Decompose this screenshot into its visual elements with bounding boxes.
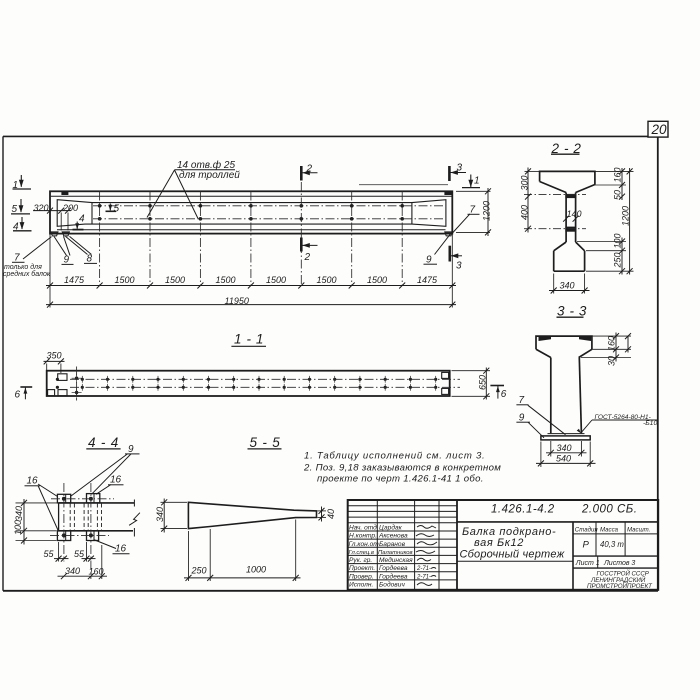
svg-text:Нач. отд: Нач. отд — [349, 524, 377, 532]
svg-text:2: 2 — [306, 164, 313, 175]
svg-text:50: 50 — [613, 190, 623, 200]
svg-text:Провер.: Провер. — [349, 573, 374, 580]
svg-text:только для: только для — [4, 263, 42, 271]
svg-text:540: 540 — [556, 454, 571, 464]
svg-text:4: 4 — [79, 214, 85, 225]
svg-text:6: 6 — [501, 389, 507, 400]
svg-text:1500: 1500 — [115, 275, 135, 285]
svg-text:Цардак: Цардак — [379, 524, 403, 532]
svg-text:Стадия: Стадия — [575, 526, 599, 533]
svg-text:16: 16 — [27, 476, 39, 487]
svg-text:400: 400 — [520, 205, 530, 220]
svg-text:средних балок: средних балок — [3, 270, 51, 278]
svg-text:30: 30 — [607, 356, 617, 366]
svg-text:3: 3 — [457, 163, 463, 174]
svg-text:для троллей: для троллей — [179, 170, 240, 181]
svg-text:350: 350 — [47, 351, 62, 361]
svg-text:250: 250 — [613, 252, 623, 268]
svg-text:16: 16 — [110, 475, 122, 486]
svg-text:1500: 1500 — [266, 275, 286, 285]
svg-text:2.000 СБ.: 2.000 СБ. — [581, 504, 637, 516]
svg-text:Проект.: Проект. — [349, 565, 375, 572]
svg-text:Аксенова: Аксенова — [378, 533, 408, 540]
svg-text:Исполн.: Исполн. — [349, 582, 374, 589]
svg-text:1. Таблицу исполнений см. лис: 1. Таблицу исполнений см. лист 3. — [304, 451, 485, 462]
svg-text:40: 40 — [326, 509, 336, 519]
svg-text:Масса: Масса — [600, 526, 619, 533]
svg-text:1475: 1475 — [64, 275, 85, 285]
svg-text:100: 100 — [613, 233, 623, 248]
svg-text:Лист 1: Лист 1 — [575, 560, 600, 567]
svg-text:140: 140 — [567, 209, 582, 219]
svg-text:160: 160 — [607, 336, 617, 351]
svg-text:Гл.кон.от: Гл.кон.от — [349, 541, 380, 548]
svg-text:300: 300 — [520, 175, 530, 190]
svg-text:5 - 5: 5 - 5 — [250, 435, 281, 450]
svg-text:проекте по черт 1.426.1-41 1 о: проекте по черт 1.426.1-41 1 обо. — [317, 474, 484, 485]
svg-text:1200: 1200 — [621, 206, 631, 226]
svg-text:55: 55 — [74, 549, 85, 559]
svg-text:Гордеева: Гордеева — [379, 564, 408, 572]
svg-text:160: 160 — [613, 167, 623, 182]
svg-text:11950: 11950 — [225, 296, 249, 306]
svg-text:вая Бк12: вая Бк12 — [474, 537, 524, 549]
svg-text:20: 20 — [651, 122, 668, 137]
svg-text:1500: 1500 — [367, 275, 387, 285]
svg-text:1500: 1500 — [216, 275, 236, 285]
svg-text:650: 650 — [478, 375, 488, 390]
svg-text:1 - 1: 1 - 1 — [234, 332, 264, 347]
svg-text:1200: 1200 — [482, 201, 492, 221]
svg-text:55: 55 — [44, 549, 55, 559]
svg-text:250: 250 — [191, 566, 207, 576]
svg-text:2. Поз. 9,18 заказываются в ко: 2. Поз. 9,18 заказываются в конкретном — [303, 463, 501, 474]
svg-text:2: 2 — [304, 252, 311, 263]
svg-text:16: 16 — [115, 544, 127, 555]
svg-text:1000: 1000 — [246, 565, 266, 575]
svg-text:1.426.1-4.2: 1.426.1-4.2 — [491, 504, 555, 516]
svg-text:3: 3 — [456, 261, 462, 272]
svg-text:7: 7 — [519, 395, 525, 406]
svg-text:ПРОМСТРОЙПРОЕКТ: ПРОМСТРОЙПРОЕКТ — [587, 582, 653, 590]
svg-text:Листов 3: Листов 3 — [603, 560, 635, 567]
svg-text:Мединская: Мединская — [379, 556, 413, 564]
svg-text:340: 340 — [65, 566, 80, 576]
svg-text:40,3 т: 40,3 т — [600, 540, 624, 549]
svg-text:1500: 1500 — [317, 275, 337, 285]
svg-text:9: 9 — [64, 255, 70, 266]
svg-text:9: 9 — [128, 444, 134, 455]
svg-text:340: 340 — [14, 506, 24, 521]
svg-text:Гл.спец.в: Гл.спец.в — [349, 550, 374, 556]
svg-text:-Б10: -Б10 — [643, 420, 657, 427]
svg-text:Гордеева: Гордеева — [379, 572, 408, 580]
svg-text:Баранов: Баранов — [379, 541, 406, 548]
svg-text:Рук. гр.: Рук. гр. — [349, 557, 372, 564]
svg-text:5: 5 — [114, 204, 120, 215]
svg-text:Бодович: Бодович — [379, 581, 405, 589]
svg-text:8: 8 — [87, 254, 93, 265]
svg-text:Р: Р — [583, 540, 590, 551]
svg-text:160: 160 — [89, 567, 104, 577]
svg-text:1475: 1475 — [417, 275, 438, 285]
svg-text:3 - 3: 3 - 3 — [557, 303, 587, 318]
svg-text:Сборочный чертеж: Сборочный чертеж — [460, 549, 565, 561]
svg-text:1: 1 — [474, 176, 480, 187]
svg-text:1500: 1500 — [165, 275, 185, 285]
svg-text:340: 340 — [557, 443, 572, 453]
svg-text:320: 320 — [34, 203, 49, 213]
svg-text:2-71-: 2-71- — [416, 566, 431, 572]
svg-text:6: 6 — [15, 390, 21, 401]
svg-text:100: 100 — [13, 520, 23, 535]
svg-text:340: 340 — [155, 507, 165, 522]
svg-text:340: 340 — [560, 281, 575, 291]
svg-text:2-71-: 2-71- — [416, 574, 431, 580]
svg-text:4 - 4: 4 - 4 — [88, 435, 119, 450]
svg-text:Палатников: Палатников — [378, 550, 413, 556]
svg-text:Н.контр.: Н.контр. — [349, 533, 377, 540]
svg-text:Масшт.: Масшт. — [627, 526, 650, 533]
